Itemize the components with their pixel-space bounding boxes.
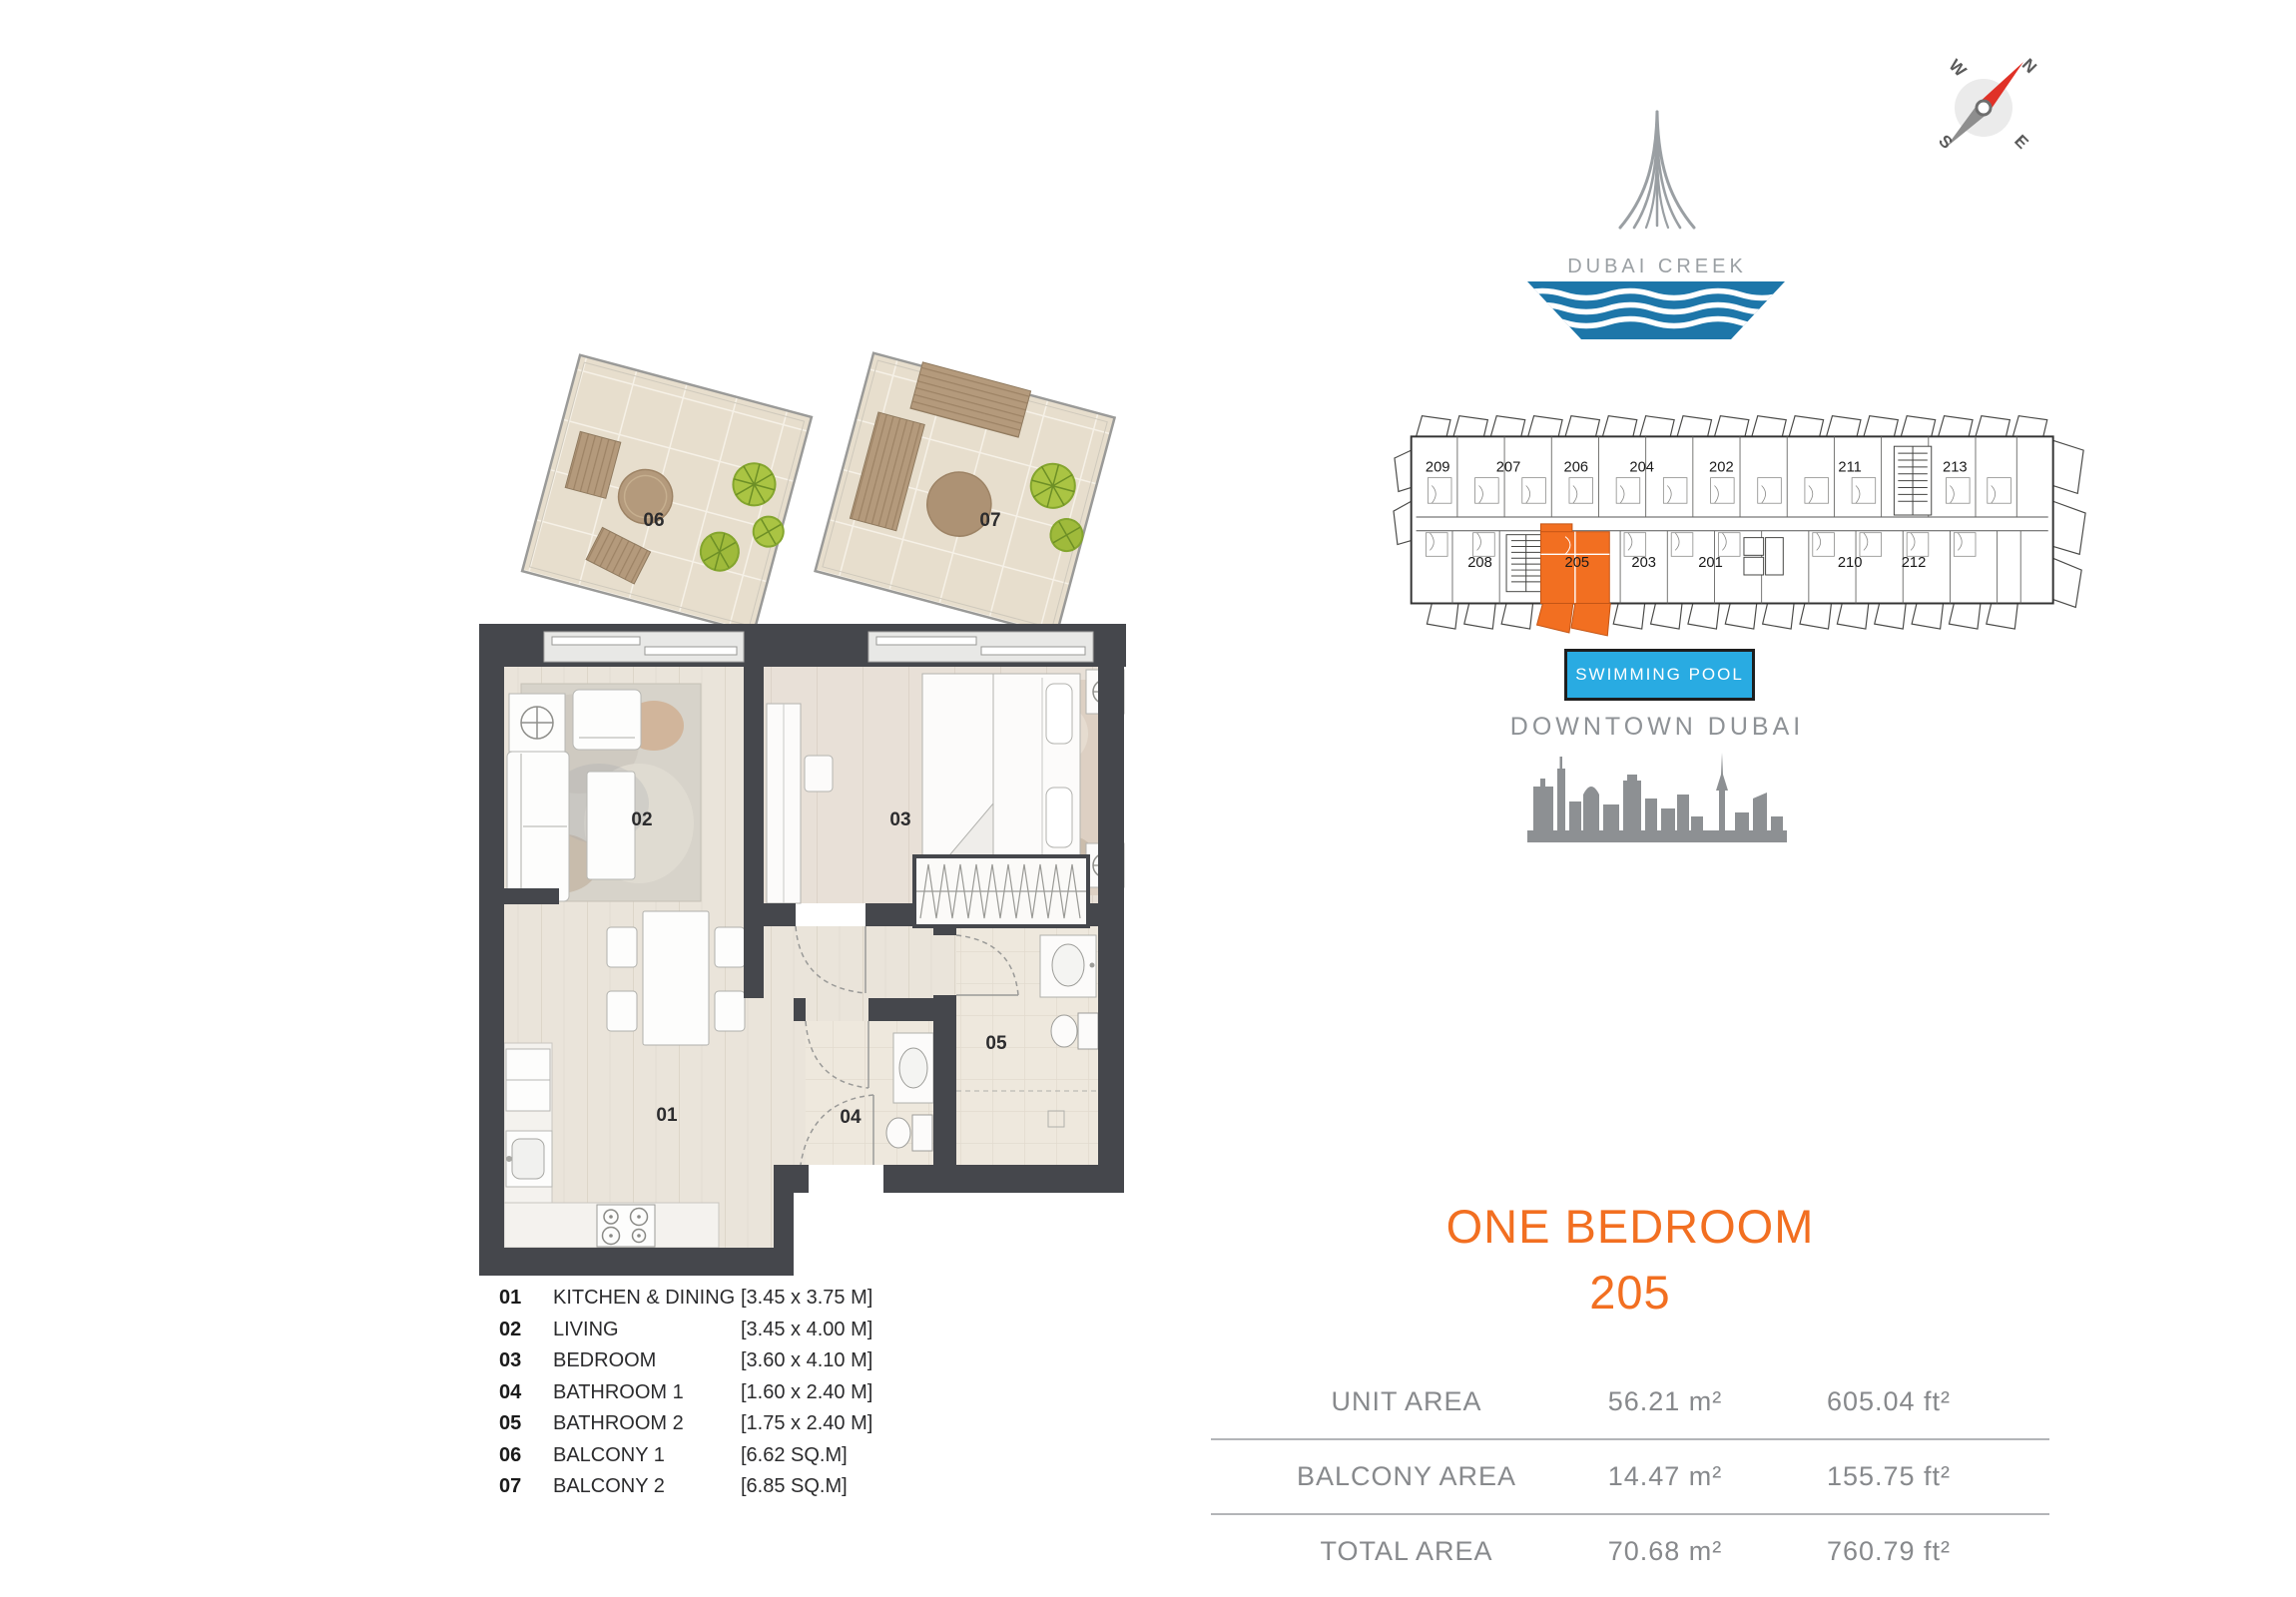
compass-icon: W N S E [1912,20,2061,170]
siteplan-unit-207: 207 [1496,460,1521,476]
area-label: UNIT AREA [1211,1386,1602,1417]
area-m2: 70.68 m² [1602,1536,1728,1567]
legend-name: BATHROOM 1 [553,1382,741,1403]
legend-row: 07 BALCONY 2 [6.85 SQ.M] [499,1476,918,1497]
area-label: BALCONY AREA [1211,1461,1602,1492]
compass-s: S [1935,131,1956,152]
legend-name: BEDROOM [553,1350,741,1371]
legend-row: 04 BATHROOM 1 [1.60 x 2.40 M] [499,1382,918,1403]
toilet [1078,1013,1098,1049]
balcony-07 [816,349,1116,636]
creek-water-icon [1525,281,1787,341]
area-row-unit: UNIT AREA 56.21 m² 605.04 ft² [1211,1365,2049,1440]
toilet [912,1115,932,1151]
room-label-living: 02 [631,809,652,830]
area-row-balcony: BALCONY AREA 14.47 m² 155.75 ft² [1211,1440,2049,1515]
legend-dims: [3.45 x 3.75 M] [741,1288,918,1309]
dubai-skyline-icon [1523,747,1791,846]
room-legend: 01 KITCHEN & DINING [3.45 x 3.75 M] 02 L… [499,1288,918,1508]
legend-num: 01 [499,1288,553,1309]
swimming-pool-label: SWIMMING POOL [1564,649,1755,701]
area-table: UNIT AREA 56.21 m² 605.04 ft² BALCONY AR… [1211,1365,2049,1588]
legend-dims: [3.45 x 4.00 M] [741,1320,918,1340]
room-label-kitchen: 01 [656,1105,678,1126]
legend-dims: [6.62 SQ.M] [741,1445,918,1466]
siteplan-unit-201: 201 [1698,555,1723,571]
logo-title: DUBAI CREEK [1517,256,1797,278]
legend-row: 03 BEDROOM [3.60 x 4.10 M] [499,1350,918,1371]
area-row-total: TOTAL AREA 70.68 m² 760.79 ft² [1211,1515,2049,1588]
living-room [507,684,701,901]
desk-chair [805,756,833,792]
siteplan-unit-202: 202 [1709,460,1734,476]
armchair [573,690,641,750]
siteplan-unit-204: 204 [1629,460,1654,476]
highlighted-balcony [1571,603,1610,635]
legend-num: 02 [499,1320,553,1340]
dubai-creek-tower-icon [1592,108,1722,240]
dining-chair [715,991,745,1031]
compass-e: E [2010,131,2031,152]
siteplan-unit-213: 213 [1943,460,1968,476]
room-label-balcony1: 06 [643,510,664,531]
legend-num: 07 [499,1476,553,1497]
legend-dims: [1.75 x 2.40 M] [741,1413,918,1434]
siteplan-unit-206: 206 [1564,460,1589,476]
highlighted-unit-205 [1537,524,1611,636]
room-label-bathroom1: 04 [840,1107,861,1128]
fan-balconies-bottom [1427,603,2017,629]
legend-row: 06 BALCONY 1 [6.62 SQ.M] [499,1445,918,1466]
dining-table [643,911,709,1045]
dining-chair [607,991,637,1031]
room-label-bathroom2: 05 [985,1033,1007,1054]
pillow [1046,788,1072,847]
siteplan-unit-211: 211 [1838,460,1862,476]
legend-name: LIVING [553,1320,741,1340]
siteplan-unit-210: 210 [1838,555,1863,571]
area-ft2: 760.79 ft² [1728,1536,2049,1567]
bathroom-1 [886,1033,933,1151]
room-label-bedroom: 03 [889,809,910,830]
legend-dims: [1.60 x 2.40 M] [741,1382,918,1403]
apartment-floorplan: 01 02 03 04 05 06 07 [449,344,1148,1293]
siteplan-unit-212: 212 [1902,555,1927,571]
legend-name: BALCONY 2 [553,1476,741,1497]
legend-row: 05 BATHROOM 2 [1.75 x 2.40 M] [499,1413,918,1434]
balcony-06 [522,355,815,634]
siteplan-unit-203: 203 [1631,555,1656,571]
area-label: TOTAL AREA [1211,1536,1602,1567]
pillow [1046,684,1072,744]
area-ft2: 605.04 ft² [1728,1386,2049,1417]
area-m2: 14.47 m² [1602,1461,1728,1492]
area-m2: 56.21 m² [1602,1386,1728,1417]
fan-balconies-top [1417,416,2047,437]
legend-num: 05 [499,1413,553,1434]
siteplan-unit-208: 208 [1467,555,1492,571]
legend-num: 04 [499,1382,553,1403]
area-ft2: 155.75 ft² [1728,1461,2049,1492]
compass-n: N [2018,55,2040,77]
compass-w: W [1945,56,1970,81]
legend-dims: [6.85 SQ.M] [741,1476,918,1497]
legend-row: 02 LIVING [3.45 x 4.00 M] [499,1320,918,1340]
legend-name: BALCONY 1 [553,1445,741,1466]
unit-type-title: ONE BEDROOM [1211,1200,2049,1254]
legend-row: 01 KITCHEN & DINING [3.45 x 3.75 M] [499,1288,918,1309]
wardrobe [914,856,1088,926]
downtown-dubai-label: DOWNTOWN DUBAI [1507,713,1807,742]
legend-name: BATHROOM 2 [553,1413,741,1434]
highlighted-balcony [1537,603,1573,632]
legend-num: 03 [499,1350,553,1371]
siteplan-unit-205: 205 [1565,555,1590,571]
legend-dims: [3.60 x 4.10 M] [741,1350,918,1371]
coffee-table [587,772,635,879]
unit-number-title: 205 [1211,1266,2049,1320]
legend-name: KITCHEN & DINING [553,1288,741,1309]
floorplan-brochure-page: 01 02 03 04 05 06 07 01 KITCHEN & DINING… [0,0,2296,1597]
stove [597,1205,655,1247]
legend-num: 06 [499,1445,553,1466]
dining-chair [715,927,745,967]
room-label-balcony2: 07 [979,510,1000,531]
siteplan-unit-209: 209 [1426,460,1450,476]
dining-chair [607,927,637,967]
